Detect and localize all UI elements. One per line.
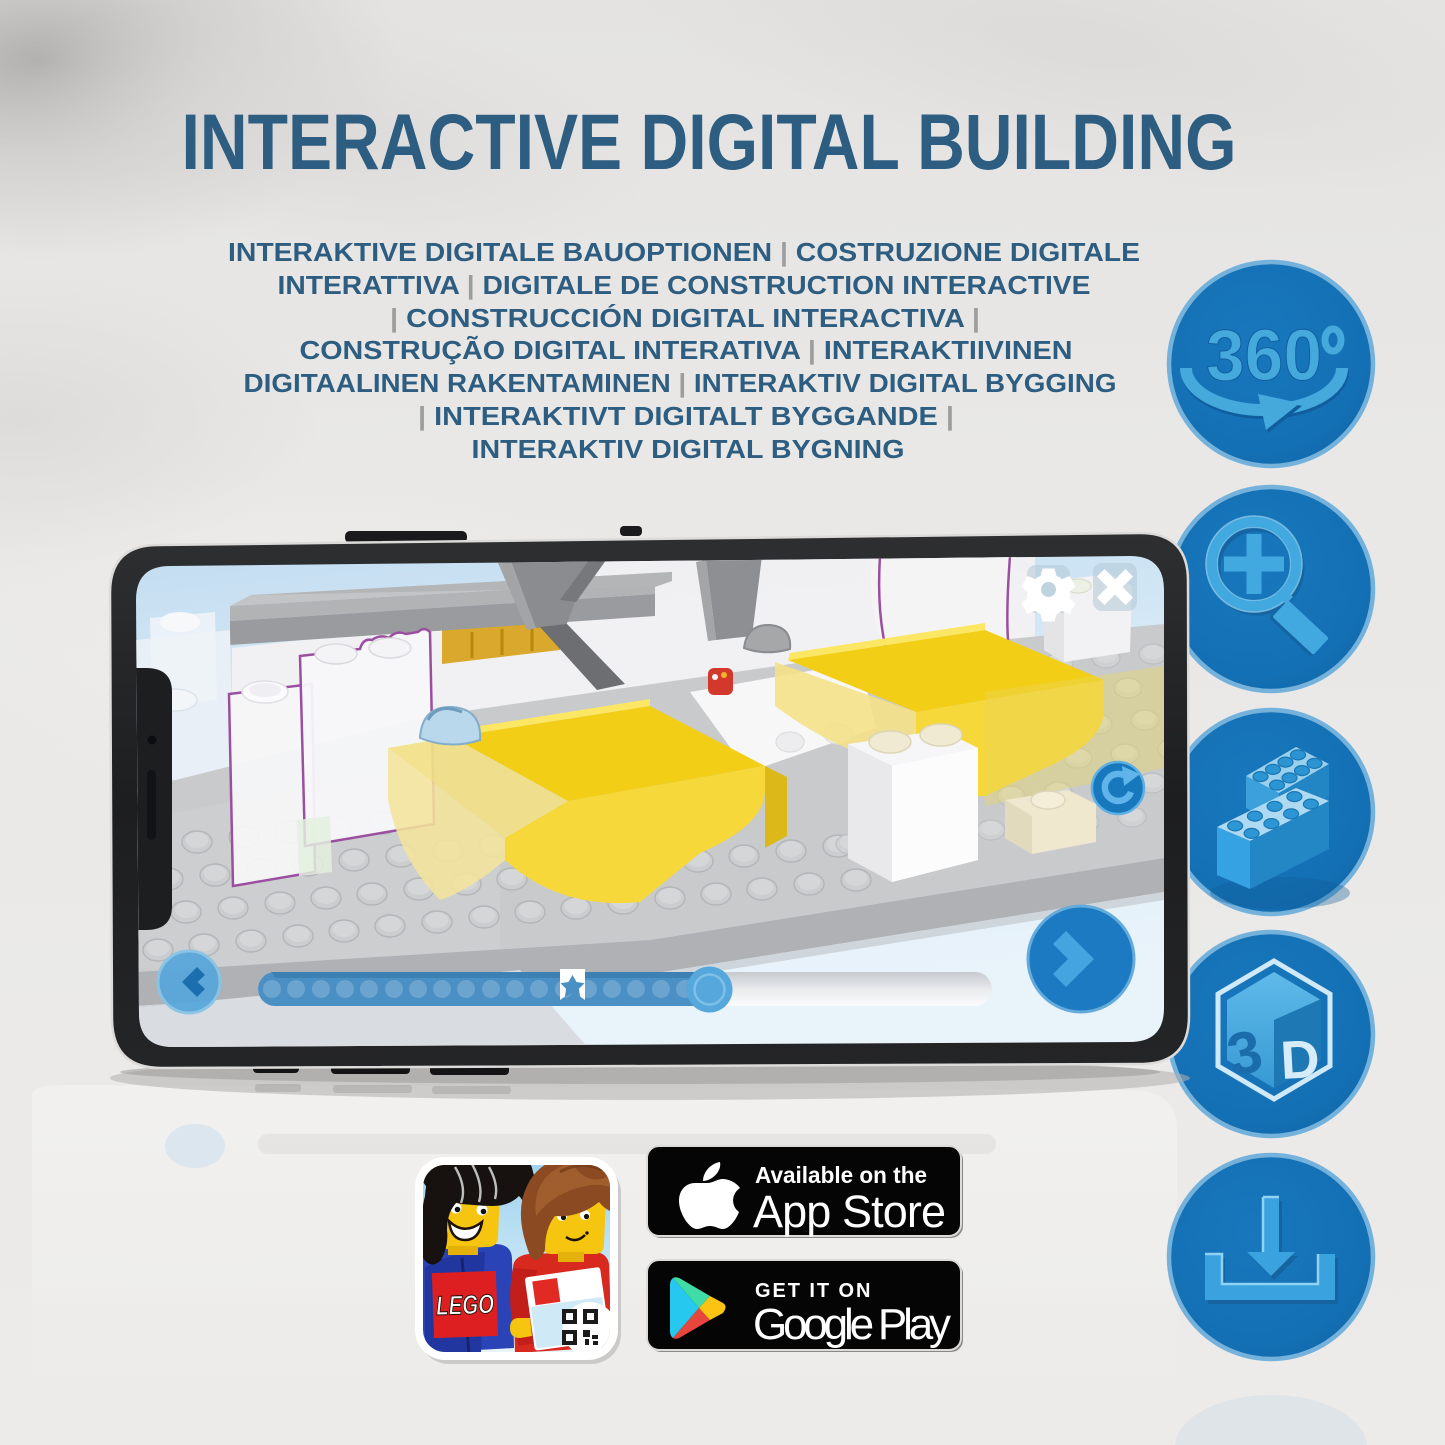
svg-text:GET IT ON: GET IT ON bbox=[755, 1280, 873, 1302]
svg-text:| CONSTRUCCIÓN DIGITAL INTERAC: | CONSTRUCCIÓN DIGITAL INTERACTIVA | bbox=[390, 303, 980, 333]
svg-text:| INTERAKTIVT DIGITALT BYGGAND: | INTERAKTIVT DIGITALT BYGGANDE | bbox=[418, 401, 954, 431]
svg-text:Google Play: Google Play bbox=[753, 1300, 951, 1349]
svg-text:INTERAKTIV DIGITAL BYGNING: INTERAKTIV DIGITAL BYGNING bbox=[472, 434, 905, 464]
svg-text:DIGITAALINEN RAKENTAMINEN | IN: DIGITAALINEN RAKENTAMINEN | INTERAKTIV D… bbox=[244, 368, 1117, 398]
svg-text:INTERAKTIVE DIGITALE BAUOPTION: INTERAKTIVE DIGITALE BAUOPTIONEN | COSTR… bbox=[228, 237, 1140, 267]
svg-text:INTERACTIVE DIGITAL BUILDING: INTERACTIVE DIGITAL BUILDING bbox=[182, 97, 1237, 186]
svg-text:INTERATTIVA | DIGITALE DE CONS: INTERATTIVA | DIGITALE DE CONSTRUCTION I… bbox=[278, 270, 1091, 300]
svg-text:App Store: App Store bbox=[753, 1186, 946, 1237]
svg-text:CONSTRUÇÃO DIGITAL INTERATIVA: CONSTRUÇÃO DIGITAL INTERATIVA | INTERAKT… bbox=[300, 335, 1073, 365]
svg-text:Available on the: Available on the bbox=[755, 1162, 927, 1188]
svg-text:D: D bbox=[1279, 1029, 1321, 1091]
svg-text:360: 360 bbox=[1206, 316, 1322, 396]
svg-text:LEGO: LEGO bbox=[435, 1289, 494, 1321]
